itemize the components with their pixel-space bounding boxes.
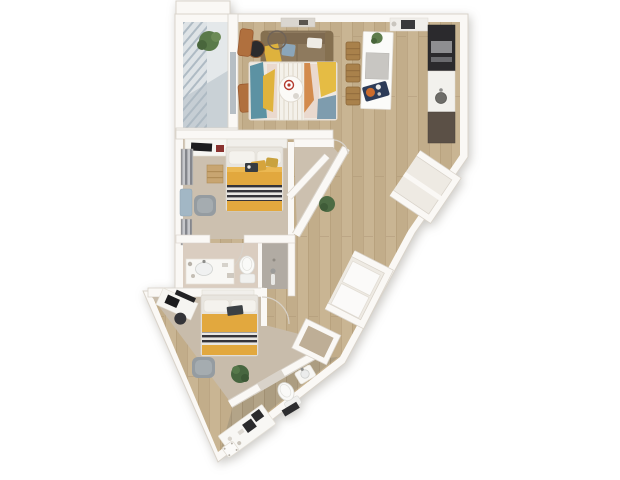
bathroom1-wall-top-left [176, 235, 210, 243]
lounge-chair-blue [180, 189, 192, 216]
bed-pillow-left [229, 151, 255, 164]
bathroom1-wall-top-right [244, 235, 295, 243]
sofa-pillow-white [307, 38, 323, 49]
bed-1 [226, 147, 283, 211]
stool-slat-2 [346, 76, 360, 77]
bedroom2-wall-east [261, 288, 267, 326]
vanity-item-4 [227, 273, 234, 278]
pouf-top [195, 360, 212, 375]
toilet-1 [240, 256, 256, 283]
pouf-bedroom1 [194, 195, 216, 216]
building [143, 1, 468, 462]
stool-seat [346, 42, 360, 60]
oven-panel [431, 41, 452, 53]
plant-leaves-dark [320, 203, 328, 211]
rug-yellow [263, 69, 275, 112]
pouf-top [197, 198, 213, 213]
bed-stripe-blanket [202, 332, 257, 345]
vanity-item-1 [188, 262, 192, 266]
counter-faucet [439, 88, 443, 92]
nook-plant [319, 196, 335, 212]
plant-leaves-dark [197, 40, 207, 50]
bed-pillow-mustard-2 [265, 157, 278, 167]
nook-wall-north [294, 139, 334, 148]
plant-leaves-dark [241, 374, 249, 382]
stool-slat [346, 48, 360, 49]
bathroom1-vanity [186, 259, 234, 284]
living-console-item [299, 20, 308, 25]
floor-plan [0, 0, 620, 480]
kitchen-cabinet-low [428, 112, 455, 143]
vanity-faucet [202, 260, 205, 263]
dining-table [279, 76, 303, 102]
copper-chair-1 [237, 28, 253, 56]
rug-slate [317, 95, 336, 119]
plant-leaves-light [211, 32, 221, 42]
bed-stripe-blanket [227, 185, 282, 201]
bed-duvet-foot [202, 345, 257, 355]
bed-pillow-left [204, 300, 229, 312]
pouf-bedroom2 [192, 357, 215, 378]
desk-tv [191, 142, 212, 151]
plant-leaves-light [232, 366, 240, 374]
bathroom1-wall-right [288, 235, 295, 296]
plate-gray [293, 93, 299, 99]
ladder-rung-2 [207, 177, 223, 178]
vanity-item-2 [191, 274, 195, 278]
stool-seat [346, 64, 360, 82]
toilet-tank [240, 274, 255, 283]
stool-slat-2 [346, 54, 360, 55]
bed-tray-cup [247, 165, 250, 168]
counter-sink [436, 93, 447, 104]
shower-head [270, 268, 275, 273]
clothes-rack-1 [181, 149, 193, 185]
wall-living-bedroom1 [176, 130, 333, 139]
stool-slat [346, 93, 360, 94]
shower-wand [271, 274, 275, 285]
shower1-divider-wall [258, 243, 262, 289]
bar-stool-3 [346, 87, 360, 105]
oven-handle [431, 57, 452, 62]
stool-slat [346, 70, 360, 71]
kitchen-counter-item [392, 22, 397, 27]
vanity-sink [196, 263, 213, 276]
bar-stool-2 [346, 64, 360, 82]
stool-seat [346, 87, 360, 105]
stool-slat-2 [346, 99, 360, 100]
balcony-glass-door [230, 52, 236, 114]
desk-red-item [216, 145, 224, 152]
bed-2 [201, 290, 258, 356]
shower-drain [273, 259, 276, 262]
ladder-rung [207, 171, 223, 172]
plate-red-dot [287, 83, 290, 86]
kitchen-microwave [401, 20, 415, 29]
kitchen-counter-right [428, 71, 455, 112]
bar-stool-1 [346, 42, 360, 60]
bedroom2-plant [231, 365, 249, 383]
floor-plan-svg [0, 0, 620, 480]
shell-top-tab [176, 1, 230, 14]
living-console [281, 18, 315, 27]
bed-tray [245, 163, 258, 172]
island-sink-panel [365, 53, 389, 80]
ladder-body [207, 165, 223, 183]
fridge-oven-unit [428, 25, 455, 71]
vanity-item-3 [222, 263, 228, 267]
ladder-shelf [207, 165, 223, 183]
toilet-bowl [240, 256, 255, 274]
kitchen-island [361, 31, 394, 109]
